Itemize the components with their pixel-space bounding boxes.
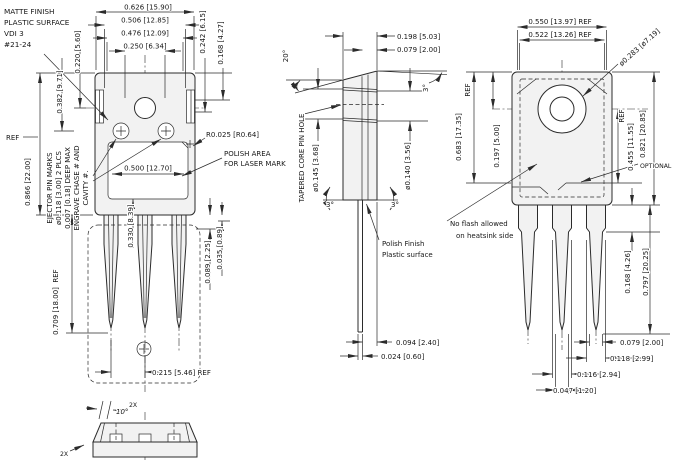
dim-front-overall-width: 0.626 [15.90] <box>124 4 172 12</box>
no-flash-note-line: on heatsink side <box>456 232 513 240</box>
bottom-view: 10° 2X 2X <box>60 401 197 460</box>
matte-note-line: #21-24 <box>4 40 32 49</box>
dim-draft-angle: 3° <box>326 201 334 209</box>
polish-note-line: FOR LASER MARK <box>224 160 286 168</box>
back-lead-3 <box>587 205 606 330</box>
dim-hole-top-dia: ø0.145 [3.68] <box>312 144 320 192</box>
front-view: MATTE FINISH PLASTIC SURFACE VDI 3 #21-2… <box>4 4 286 393</box>
dim-lead-gap: 0.094 [2.40] <box>396 339 440 347</box>
dim-lead-pitch: 0.215 [5.46] REF <box>152 369 211 377</box>
matte-note-line: VDI 3 <box>4 29 24 38</box>
dim-draft-angle: 10° <box>116 408 128 416</box>
dim-total-height: 0.821 [20.85] <box>639 110 647 158</box>
dim-step: 0.035 [0.89] <box>216 226 224 270</box>
taper-note: TAPERED CORE PIN HOLE <box>298 114 306 204</box>
back-mounting-hole <box>550 97 574 121</box>
front-lead-3 <box>172 215 186 328</box>
dim-front-hole-span: 0.250 [6.34] <box>123 43 167 51</box>
matte-note-line: PLASTIC SURFACE <box>4 18 70 27</box>
back-view: 0.550 [13.97] REF 0.522 [13.26] REF ø0.2… <box>447 18 672 395</box>
optional-label: OPTIONAL <box>640 163 672 170</box>
dim-top-to-pins: 0.382 [9.71] <box>56 70 64 114</box>
matte-note-line: MATTE FINISH <box>4 7 55 16</box>
dim-top-angle: 20° <box>282 50 290 62</box>
dim-back-inner-width: 0.522 [13.26] REF <box>528 31 591 39</box>
ref-label: REF <box>6 134 19 142</box>
ref-label: REF <box>618 109 626 122</box>
dim-left-height: 0.683 [17.35] <box>455 113 463 161</box>
ejector-note-line: ø0.118 [3.00] 2 PLCS <box>55 150 63 225</box>
ref-label: REF <box>464 83 472 96</box>
mounting-hole <box>135 98 156 119</box>
ref-label: REF <box>52 269 60 282</box>
side-view: 0.198 [5.03] 0.079 [2.00] 20° 3° TAPERED… <box>282 32 447 361</box>
ejector-note-line: CAVITY #. <box>82 171 90 206</box>
front-lead-1 <box>104 215 118 328</box>
dim-front-step-width: 0.506 [12.85] <box>121 17 169 25</box>
ejector-note-line: ENGRAVE CHASE # AND <box>73 146 81 231</box>
dim-corner-radius: R0.025 [R0.64] <box>206 131 259 139</box>
dim-right-lower: 0.168 [4.27] <box>217 21 225 65</box>
dim-body-height: 0.866 [22.00] <box>24 158 32 206</box>
side-lead <box>358 200 363 332</box>
back-lead-2 <box>553 205 572 330</box>
dim-recess-width: 0.500 [12.70] <box>124 165 172 173</box>
dim-shoulder: 0.089 [2.25] <box>204 240 212 284</box>
dim-top-to-hole: 0.220 [5.60] <box>74 30 82 74</box>
front-lead-2 <box>138 215 152 328</box>
dim-lead-tip: 0.047 [1.20] <box>553 387 597 395</box>
dim-thickness: 0.198 [5.03] <box>397 33 441 41</box>
dim-right-height: 0.455 [11.55] <box>627 123 635 171</box>
dim-right-upper: 0.242 [6.15] <box>199 10 207 54</box>
ejector-note-line: 0.007 [0.18] DEEP MAX <box>64 147 72 229</box>
front-side-notch-right <box>187 90 195 123</box>
technical-drawing-canvas: MATTE FINISH PLASTIC SURFACE VDI 3 #21-2… <box>0 0 684 460</box>
polish-note-line: Polish Finish <box>382 240 424 248</box>
dim-lead-width-3: 0.118 [2.99] <box>610 355 654 363</box>
dim-lead-width-2: 0.116 [2.94] <box>577 371 621 379</box>
dim-hole-to-top: 0.197 [5.00] <box>493 124 501 168</box>
dim-lead-length: 0.709 [18.00] <box>52 287 60 335</box>
dim-front-inner-width: 0.476 [12.09] <box>121 30 169 38</box>
dim-lead-offset: 0.079 [2.00] <box>397 46 441 54</box>
dim-recess-depth: 0.330 [8.39] <box>127 204 135 248</box>
dim-lead-length: 0.797 [20.25] <box>642 248 650 296</box>
back-lead-1 <box>519 205 538 330</box>
dim-hole-bottom-dia: ø0.140 [3.56] <box>404 142 412 190</box>
polish-note-line: POLISH AREA <box>224 150 271 158</box>
dim-lead-width-narrow: 0.079 [2.00] <box>620 339 664 347</box>
times-2-label: 2X <box>129 402 138 409</box>
dim-lead-thickness: 0.024 [0.60] <box>381 353 425 361</box>
dim-draft-angle: 3° <box>391 201 399 209</box>
dim-draft-angle: 3° <box>422 84 430 92</box>
times-2-label: 2X <box>60 451 69 458</box>
ejector-note-line: EJECTOR PIN MARKS <box>46 152 54 224</box>
dim-shoulder-length: 0.168 [4.26] <box>624 250 632 294</box>
dim-back-top-width: 0.550 [13.97] REF <box>528 18 591 26</box>
drawing-page: MATTE FINISH PLASTIC SURFACE VDI 3 #21-2… <box>0 0 684 460</box>
no-flash-note-line: No flash allowed <box>450 220 508 228</box>
bottom-tab-outline <box>93 442 197 457</box>
dim-boss-diameter: ø0.283 [ø7.19] <box>618 27 662 68</box>
polish-note-line: Plastic surface <box>382 251 433 259</box>
